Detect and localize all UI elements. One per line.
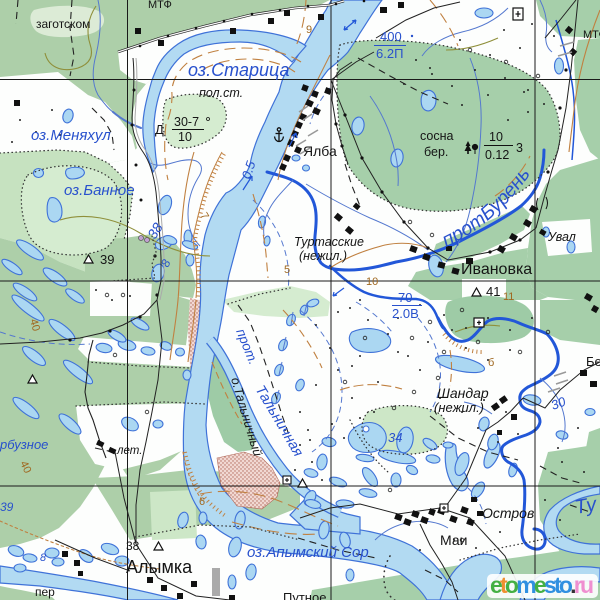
svg-text:рбузное: рбузное — [0, 437, 48, 452]
svg-text:сосна: сосна — [420, 129, 453, 143]
svg-text:Маи: Маи — [440, 532, 467, 548]
svg-text:Д: Д — [155, 122, 164, 137]
svg-text:11: 11 — [503, 291, 514, 303]
svg-text:пер: пер — [35, 585, 55, 599]
svg-text:2.0В: 2.0В — [392, 306, 419, 321]
svg-text:38: 38 — [126, 539, 140, 553]
svg-text:3: 3 — [516, 141, 523, 155]
svg-text:6: 6 — [199, 496, 205, 508]
svg-text:Бе: Бе — [586, 354, 600, 369]
svg-text:Ивановка: Ивановка — [461, 261, 532, 278]
svg-text:10: 10 — [366, 276, 378, 288]
svg-text:41: 41 — [486, 284, 500, 299]
svg-text:(нежил.): (нежил.) — [299, 249, 347, 263]
svg-text:10: 10 — [489, 130, 503, 144]
svg-text:Шандар: Шандар — [437, 385, 489, 401]
svg-text:лет.: лет. — [116, 445, 142, 457]
svg-text:0.12: 0.12 — [485, 148, 509, 162]
svg-text:Увал: Увал — [547, 230, 576, 244]
svg-text:10: 10 — [178, 130, 192, 144]
svg-text:оз.Банное: оз.Банное — [64, 182, 135, 199]
svg-text:пол.ст.: пол.ст. — [199, 86, 243, 100]
svg-text:39: 39 — [0, 500, 14, 514]
svg-text:МТФ: МТФ — [583, 29, 600, 41]
svg-text:оз.Меняхул: оз.Меняхул — [31, 127, 111, 144]
svg-text:9: 9 — [306, 24, 312, 36]
svg-text:бер.: бер. — [424, 145, 448, 159]
svg-text:б: б — [488, 357, 494, 369]
svg-text:(нежил.): (нежил.) — [434, 400, 484, 415]
svg-text:МТФ: МТФ — [148, 0, 172, 11]
svg-text:оз.Апымский Сор: оз.Апымский Сор — [247, 544, 369, 561]
svg-text:etomesto.ru: etomesto.ru — [490, 572, 594, 598]
svg-text:Туртасские: Туртасские — [294, 235, 364, 249]
svg-text:6.2П: 6.2П — [376, 46, 403, 61]
svg-text:30-7: 30-7 — [174, 115, 199, 129]
svg-text:8: 8 — [40, 552, 47, 564]
svg-text:оз.Старица: оз.Старица — [188, 60, 290, 80]
svg-text:34: 34 — [388, 430, 402, 445]
svg-text:70: 70 — [398, 290, 412, 305]
svg-text:Ялба: Ялба — [303, 143, 337, 159]
svg-text:Путное: Путное — [283, 590, 326, 600]
svg-text:Остров: Остров — [482, 505, 534, 521]
svg-text:39: 39 — [100, 252, 114, 267]
svg-text:400: 400 — [380, 29, 402, 44]
svg-text:5: 5 — [284, 264, 290, 276]
svg-text:заготском: заготском — [36, 17, 90, 31]
svg-text:Алымка: Алымка — [126, 557, 193, 577]
